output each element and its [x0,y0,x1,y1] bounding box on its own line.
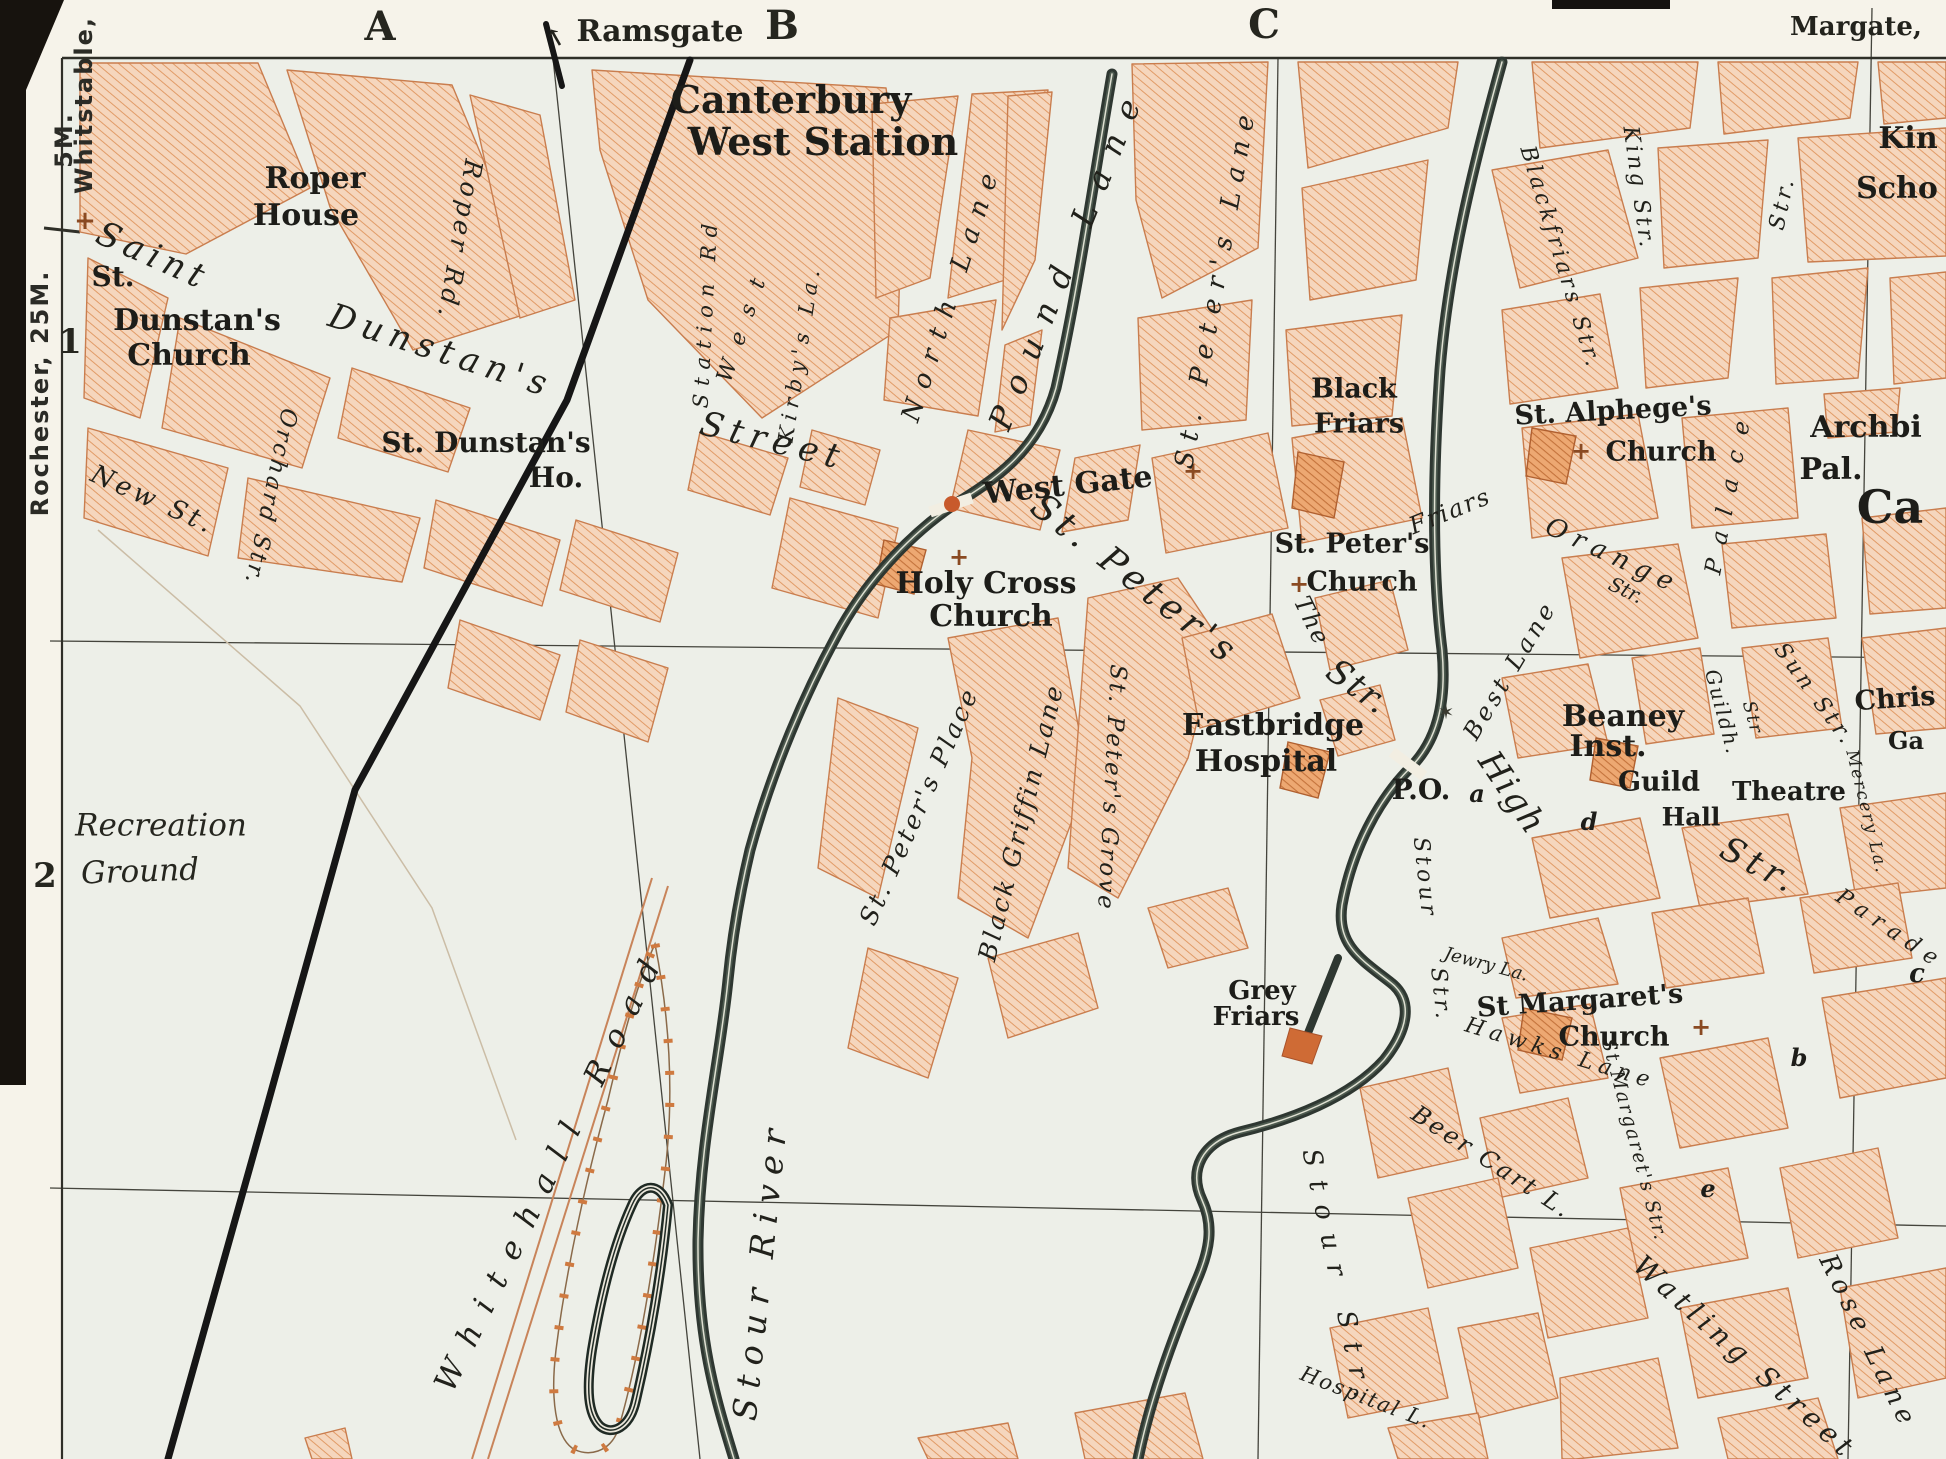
map-label-hall: Hall [1662,805,1721,830]
map-canvas: ABC12Ramsgate↑Margate,Rochester, 25M.Whi… [0,0,1946,1459]
map-label-p-o: P.O. [1392,776,1451,804]
map-label-ho: Ho. [529,464,583,492]
street-label-st-peter-s-grove: St. Peter's Grove [1093,664,1129,913]
map-label-west-station: West Station [688,123,959,161]
map-label-hospital: Hospital [1195,747,1337,777]
map-label-black: Black [1311,376,1397,403]
street-label-new-st: New St. [87,461,219,539]
street-label-stour: Stour [1409,836,1439,920]
map-label-archbi: Archbi [1810,413,1922,443]
map-label-friars: Friars [1213,1004,1300,1030]
map-label-glyph: + [74,208,96,234]
map-label-friars: Friars [1314,411,1404,438]
map-label-house: House [253,201,359,231]
map-label-grey: Grey [1228,978,1296,1004]
map-label-st-margaret-s: St Margaret's [1476,980,1684,1021]
map-label-church: Church [1605,439,1716,466]
map-label-a: A [364,7,395,47]
map-label-glyph: + [1691,1015,1711,1039]
map-label-glyph: ↑ [541,23,570,54]
street-label-rose-lane: Rose Lane [1814,1250,1921,1433]
street-label-kirby-s-la: Kirby's La. [776,262,825,443]
map-label-glyph: + [1289,572,1309,596]
map-label-st-alphege-s: St. Alphege's [1514,392,1712,429]
map-label-pal: Pal. [1799,455,1862,485]
map-label-rochester-25m: Rochester, 25M. [28,270,52,517]
map-label-ga: Ga [1888,729,1924,753]
map-label-scho: Scho [1856,174,1938,204]
map-label-ca: Ca [1857,484,1923,530]
street-label-roper-rd: Roper Rd. [434,157,487,322]
map-label-glyph: + [949,545,969,569]
map-label-e: e [1700,1177,1715,1201]
map-label-b: b [1791,1046,1808,1070]
street-label-st-peter-s-lane: St. Peter's Lane [1171,103,1261,470]
street-label-whitehall-road: Whitehall Road [430,940,674,1397]
map-label-ramsgate: Ramsgate [576,17,743,47]
street-label-str: Str. [1426,966,1454,1023]
map-label-2: 2 [33,859,57,893]
map-label-5m: 5M. [52,112,76,168]
street-label-mercery-la: Mercery La. [1842,748,1889,875]
map-label-glyph: + [1571,439,1591,463]
street-label-the: The [1290,593,1334,650]
street-label-str: Str [1739,699,1765,737]
street-label-palace: Palace [1702,404,1757,577]
street-label-parade: Parade [1832,886,1946,975]
street-label-str: Str. [1715,831,1805,901]
street-label-beer-cart-l: Beer Cart L. [1407,1101,1576,1223]
street-label-street: Street [697,406,850,475]
map-label-chris: Chris [1854,683,1936,716]
map-label-dunstan-s: Dunstan's [113,306,281,336]
street-label-west: West [714,259,776,385]
street-label-king-str: King Str. [1618,125,1657,252]
street-label-guildh: Guildh. [1702,667,1744,757]
map-label-inst: Inst. [1569,732,1646,762]
map-label-canterbury: Canterbury [671,81,912,119]
map-label-margate: Margate, [1790,14,1922,40]
street-label-blackfriars-str: Blackfriars Str. [1515,144,1604,373]
street-label-best-lane: Best Lane [1459,596,1561,743]
street-label-str: Str. [1767,174,1800,232]
map-label-church: Church [127,341,250,371]
map-label-b: B [765,6,799,46]
map-label-eastbridge: Eastbridge [1182,711,1364,741]
street-label-jewry-la: Jewry La. [1442,945,1530,985]
map-label-st-peter-s: St. Peter's [1275,531,1430,558]
map-label-recreation: Recreation [75,811,247,842]
map-label-church: Church [929,602,1052,632]
map-label-ground: Ground [80,854,199,889]
street-label-black-griffin-lane: Black Griffin Lane [974,681,1067,964]
map-label-1: 1 [58,325,82,359]
street-label-pound-lane: Pound Lane [984,78,1153,434]
map-label-c: C [1248,5,1280,45]
map-label-church: Church [1306,569,1417,596]
map-label-holy-cross: Holy Cross [895,569,1076,599]
street-label-station-rd: Station Rd [690,215,721,408]
street-label-st-peter-s-place: St. Peter's Place [855,683,983,928]
street-label-orchard-str: Orchard Str. [240,406,300,588]
map-label-theatre: Theatre [1732,779,1846,805]
map-label-st-dunstan-s: St. Dunstan's [381,429,590,457]
street-label-sun-str: Sun Str. [1769,639,1858,750]
street-label-friars: Friars [1406,484,1495,538]
street-label-stour-river: Stour River [728,1118,792,1422]
map-labels: ABC12Ramsgate↑Margate,Rochester, 25M.Whi… [0,0,1946,1459]
map-label-guild: Guild [1618,769,1700,796]
map-label-roper: Roper [265,164,366,194]
map-label-kin: Kin [1878,124,1937,154]
map-label-beaney: Beaney [1562,702,1684,732]
map-label-glyph: ✶ [1438,702,1455,722]
street-label-north-lane: North Lane [898,159,1007,425]
map-label-d: d [1581,810,1598,834]
